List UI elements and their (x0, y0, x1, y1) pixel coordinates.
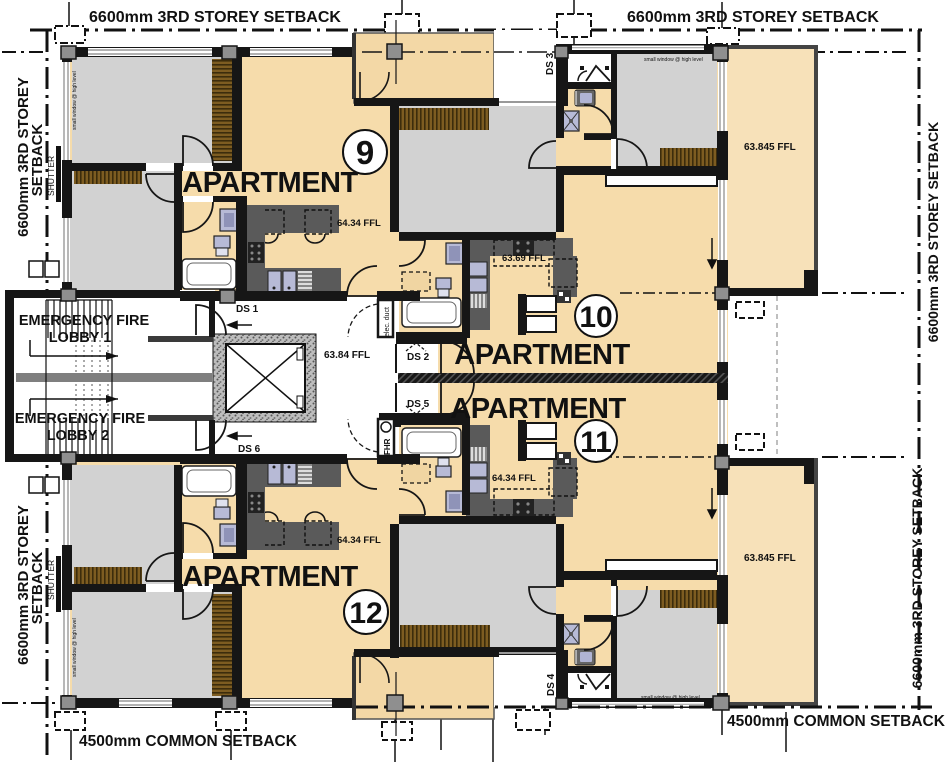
svg-text:EMERGENCY FIRE: EMERGENCY FIRE (19, 313, 150, 329)
svg-text:APARTMENT: APARTMENT (454, 339, 630, 371)
svg-text:LOBBY 2: LOBBY 2 (47, 428, 110, 444)
svg-text:SHUTTER: SHUTTER (46, 560, 56, 600)
svg-text:12: 12 (349, 597, 382, 630)
svg-text:small window @ high level: small window @ high level (641, 695, 700, 701)
svg-text:64.34 FFL: 64.34 FFL (337, 535, 381, 546)
svg-text:DS 2: DS 2 (407, 352, 430, 363)
svg-text:DS 3: DS 3 (545, 52, 556, 75)
svg-text:63.845 FFL: 63.845 FFL (744, 142, 796, 153)
svg-text:DS 4: DS 4 (546, 673, 557, 696)
svg-text:64.34 FFL: 64.34 FFL (337, 218, 381, 229)
svg-text:small window @ high level: small window @ high level (72, 618, 78, 677)
svg-text:6600mm 3RD STOREY SETBACK: 6600mm 3RD STOREY SETBACK (89, 9, 341, 26)
svg-text:4500mm COMMON SETBACK: 4500mm COMMON SETBACK (727, 713, 946, 730)
svg-text:10: 10 (579, 301, 612, 334)
svg-text:SETBACK: SETBACK (29, 124, 46, 197)
svg-text:4500mm COMMON SETBACK: 4500mm COMMON SETBACK (79, 733, 298, 750)
svg-text:64.34 FFL: 64.34 FFL (492, 473, 536, 484)
svg-text:DS 1: DS 1 (236, 304, 259, 315)
svg-text:6600mm 3RD STOREY SETBACK: 6600mm 3RD STOREY SETBACK (627, 9, 879, 26)
svg-text:11: 11 (580, 426, 612, 459)
svg-text:EMERGENCY FIRE: EMERGENCY FIRE (15, 411, 146, 427)
svg-text:DS 5: DS 5 (407, 399, 430, 410)
svg-text:63.69 FFL: 63.69 FFL (502, 253, 546, 264)
svg-text:6600mm 3RD STOREY SETBACK: 6600mm 3RD STOREY SETBACK (909, 468, 925, 688)
svg-text:LOBBY 1: LOBBY 1 (49, 330, 112, 346)
svg-text:63.845 FFL: 63.845 FFL (744, 553, 796, 564)
svg-text:SHUTTER: SHUTTER (46, 156, 56, 196)
svg-text:APARTMENT: APARTMENT (182, 167, 358, 199)
svg-text:9: 9 (356, 134, 374, 171)
svg-text:small window @ high level: small window @ high level (72, 71, 78, 130)
svg-text:FHR: FHR (383, 438, 392, 455)
svg-text:APARTMENT: APARTMENT (182, 561, 358, 593)
svg-text:elec. duct: elec. duct (384, 307, 391, 337)
svg-text:small window @ high level: small window @ high level (644, 57, 703, 63)
svg-text:63.84 FFL: 63.84 FFL (324, 350, 370, 361)
svg-text:6600mm 3RD STOREY SETBACK: 6600mm 3RD STOREY SETBACK (925, 122, 941, 342)
svg-text:DS 6: DS 6 (238, 444, 261, 455)
svg-text:SETBACK: SETBACK (29, 552, 46, 625)
